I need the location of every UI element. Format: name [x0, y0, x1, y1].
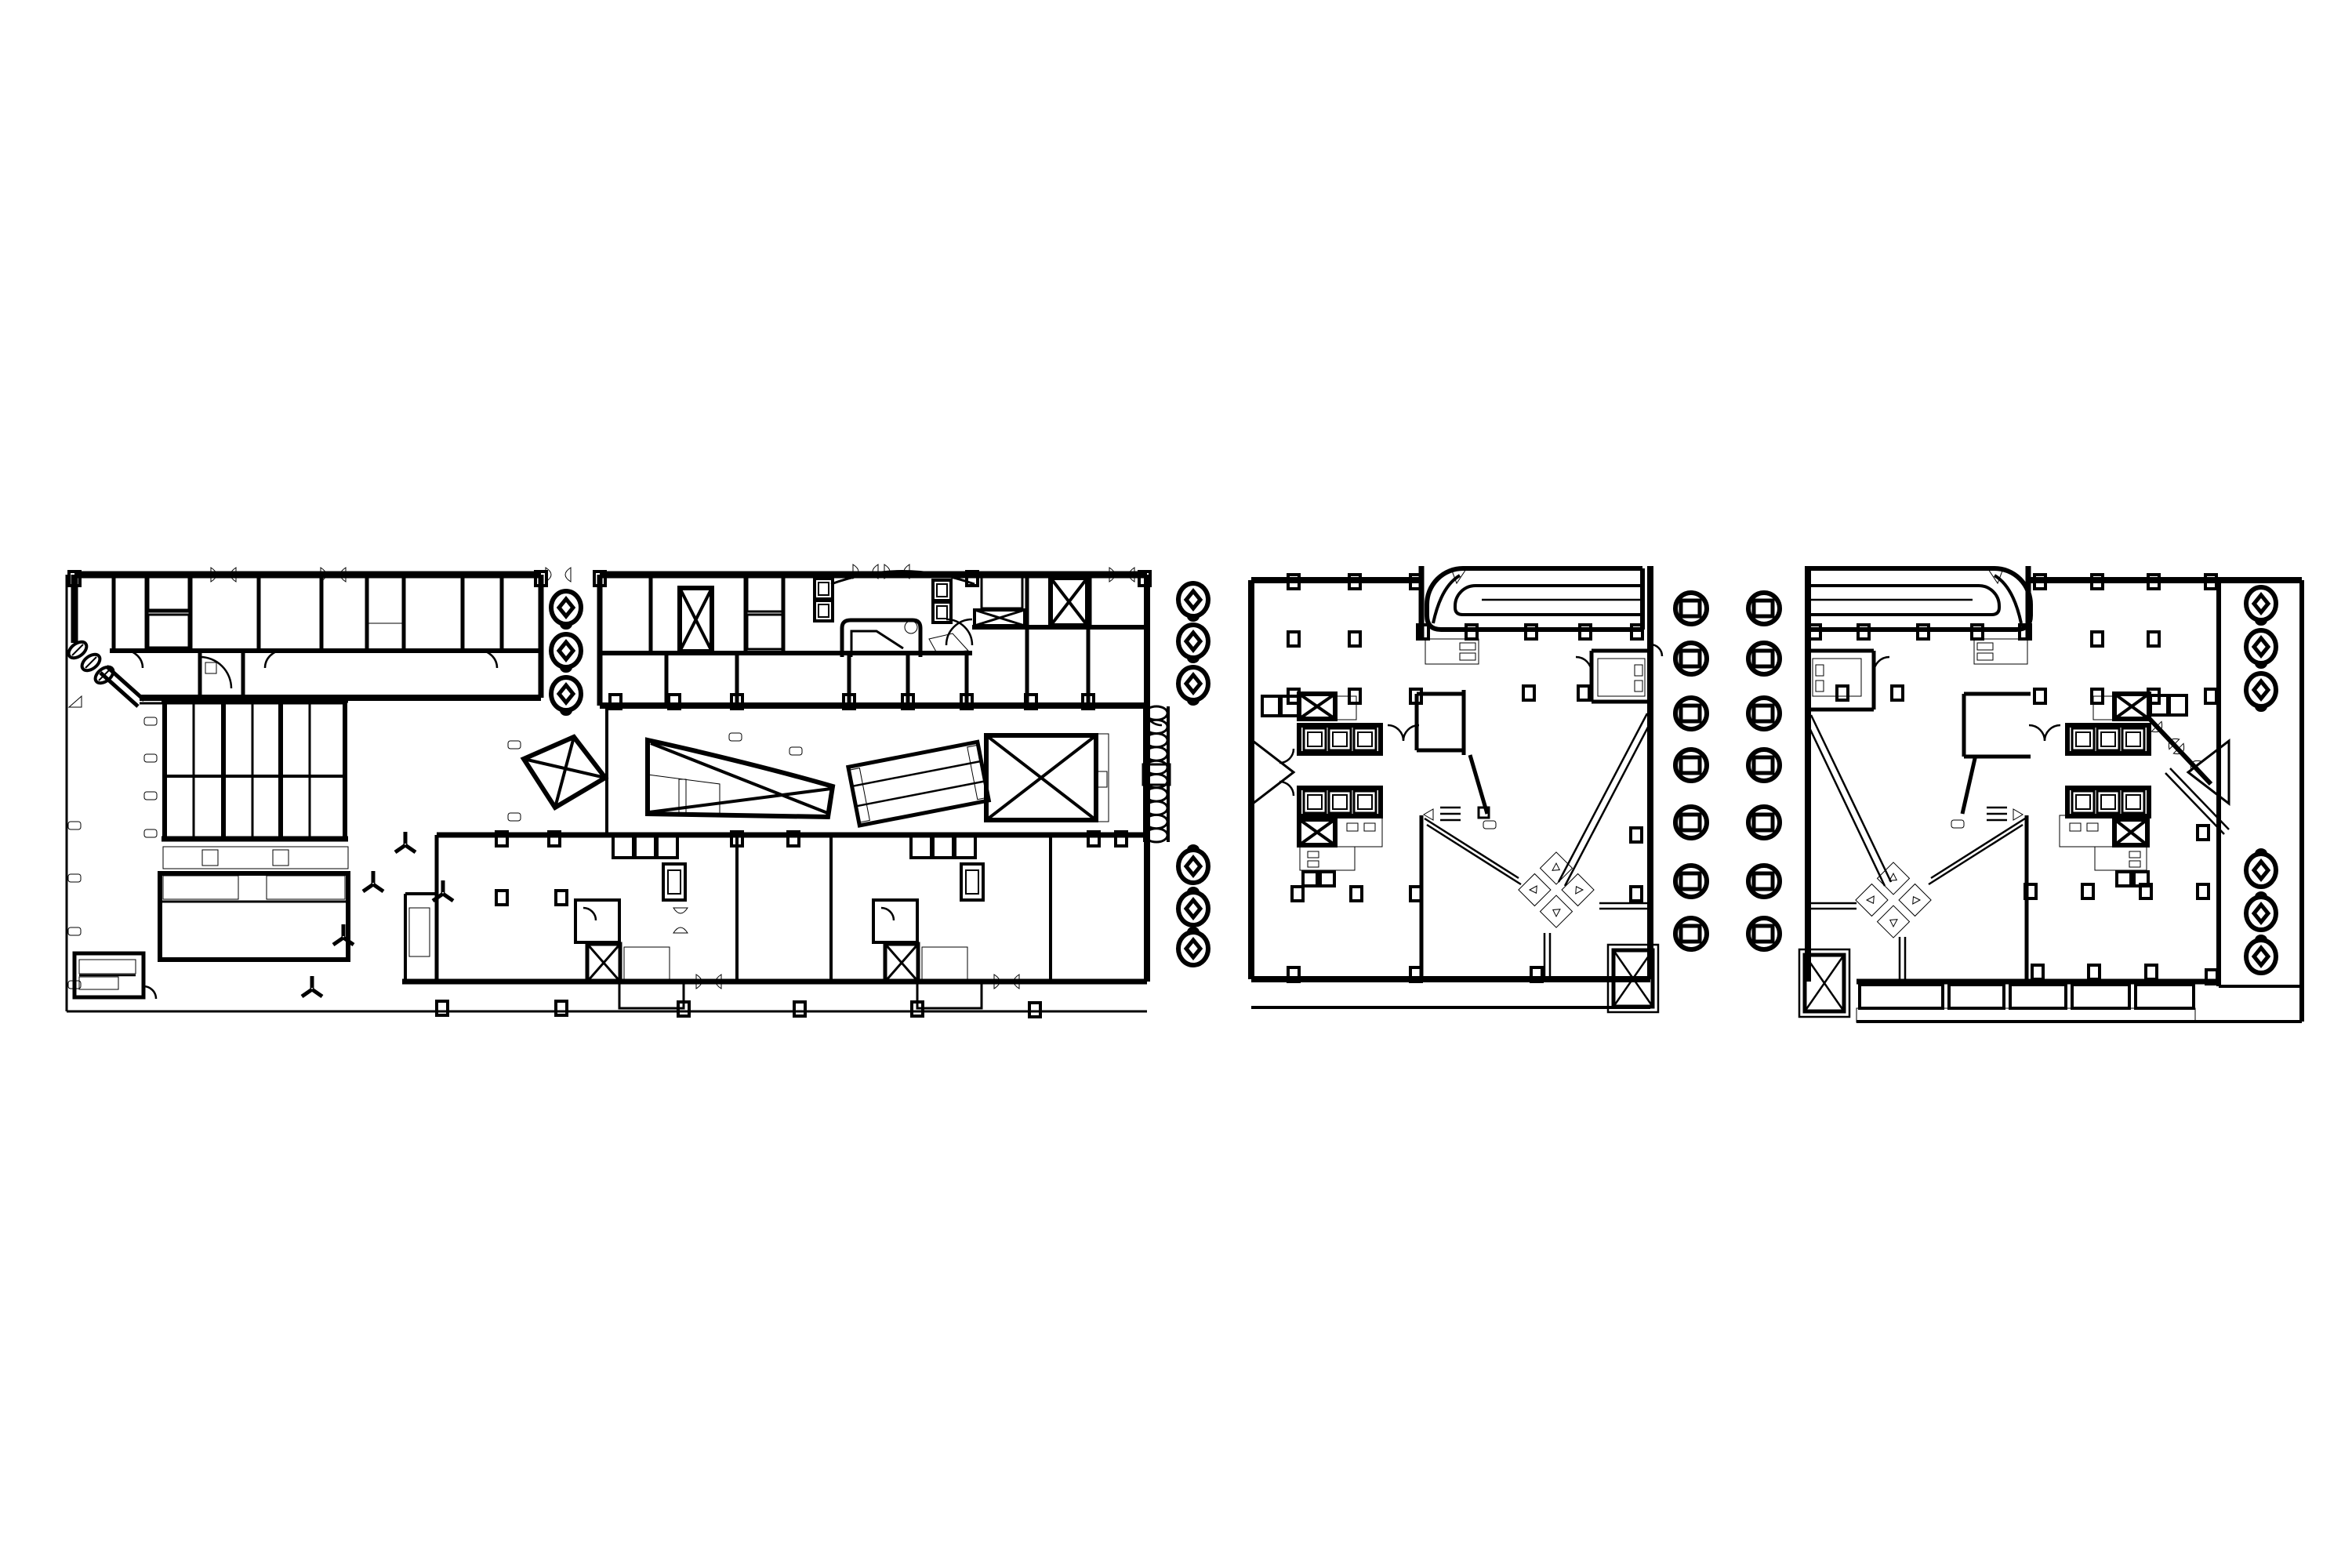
escalator-hatched	[848, 742, 989, 826]
column-dot-icon	[1483, 821, 1496, 829]
elevator-cells-right	[933, 580, 951, 622]
column-ring-diamond-icon	[2246, 630, 2276, 667]
column-dot-icon	[68, 927, 81, 935]
plan-a-left-wing	[66, 575, 541, 706]
drawing-canvas	[0, 0, 2352, 1568]
stair-x-shaft	[680, 588, 712, 652]
column-ring-diamond-icon	[2246, 673, 2276, 710]
column-ring-diamond-icon	[551, 677, 581, 714]
column-ring-diamond-icon	[2246, 936, 2276, 973]
plan-a	[66, 572, 1170, 1012]
column-ring-diamond-icon	[1178, 667, 1208, 704]
column-ring-square-icon	[1748, 750, 1780, 781]
column-dot-icon	[144, 754, 157, 762]
plan-a-plaza	[74, 700, 348, 999]
column-ring-square-icon	[1748, 643, 1780, 674]
column-dot-icon	[68, 874, 81, 882]
skylight-kite	[524, 737, 605, 808]
column-dot-icon	[144, 717, 157, 725]
wall-column-tick-icon	[556, 891, 567, 905]
column-ring-diamond-icon	[1178, 928, 1208, 965]
wall-column-tick-icon	[1288, 632, 1299, 646]
elevator-cells-left	[815, 579, 833, 621]
wall-column-tick-icon	[1837, 686, 1848, 700]
x-shaft-bottom	[1299, 819, 1335, 845]
elevator-bank-bottom-mirrored	[2067, 788, 2149, 816]
column-ring-square-icon	[1748, 698, 1780, 729]
corner-skylight-icon	[1799, 949, 1849, 1017]
escalator-parallelogram	[648, 740, 833, 817]
elevator-bank-bottom	[1299, 788, 1381, 816]
column-ring-square-icon	[1748, 593, 1780, 624]
column-ring-diamond-icon	[1178, 846, 1208, 883]
x-shaft-top-mirrored	[2114, 694, 2149, 719]
fan-stair	[1253, 741, 1294, 804]
wall-column-tick-icon	[1578, 686, 1589, 700]
column-ring-square-icon	[1675, 918, 1707, 949]
site-marker-triangle	[69, 696, 82, 707]
column-ring-square-icon	[1675, 807, 1707, 838]
column-ring-square-icon	[1675, 698, 1707, 729]
wall-column-tick-icon	[2032, 965, 2043, 979]
elevator-bank-top	[1299, 725, 1381, 753]
wall-column-tick-icon	[1349, 632, 1360, 646]
x-shaft-bottom-mirrored	[2114, 819, 2147, 845]
plant-icon	[363, 871, 383, 891]
column-dot-icon	[144, 792, 157, 800]
symbol-instances	[68, 564, 2276, 1017]
plan-a-bottom-rooms	[402, 835, 1147, 1008]
column-ring-square-icon	[1675, 593, 1707, 624]
column-ring-diamond-icon	[551, 634, 581, 671]
service-core-b	[873, 836, 983, 1008]
column-ring-square-icon	[1748, 807, 1780, 838]
column-dot-icon	[729, 733, 742, 741]
column-ring-diamond-icon	[2246, 587, 2276, 624]
stair-hatched-central-left	[746, 575, 783, 653]
plant-icon	[395, 832, 416, 852]
wall-column-tick-icon	[2082, 884, 2093, 898]
column-ring-square-icon	[1675, 750, 1707, 781]
diagonal-wall	[2148, 717, 2211, 784]
wall-column-tick-icon	[2198, 884, 2209, 898]
stair-hatched-wing	[148, 577, 189, 648]
wall-column-tick-icon	[1631, 887, 1642, 901]
plan-a-atrium	[524, 706, 1170, 842]
column-dot-icon	[144, 829, 157, 837]
plant-icon	[333, 924, 354, 945]
column-ring-diamond-icon	[2246, 850, 2276, 887]
wall-column-tick-icon	[2146, 965, 2157, 979]
door-bowtie-icon	[546, 568, 571, 582]
plant-icon	[302, 976, 322, 996]
column-dot-icon	[68, 822, 81, 829]
wall-column-tick-icon	[1292, 887, 1303, 901]
column-ring-diamond-icon	[1178, 888, 1208, 925]
wall-column-tick-icon	[1892, 686, 1903, 700]
column-dot-icon	[508, 813, 521, 821]
floor-plan-sheet	[0, 0, 2352, 1568]
skylight-x-box	[986, 734, 1109, 822]
wall-column-tick-icon	[794, 1002, 805, 1016]
wall-column-tick-icon	[2092, 632, 2103, 646]
plan-c-bottom-strip	[1857, 985, 2195, 1022]
x-shaft-top	[1299, 694, 1335, 719]
wall-column-tick-icon	[556, 1001, 567, 1015]
wall-column-tick-icon	[1523, 686, 1534, 700]
column-ring-diamond-icon	[2246, 893, 2276, 930]
wall-column-tick-icon	[437, 1001, 448, 1015]
wall-column-tick-icon	[2198, 826, 2209, 840]
stair-x-shaft-right	[1051, 578, 1087, 626]
column-ring-square-icon	[1748, 866, 1780, 897]
plan-c	[1806, 566, 2302, 1022]
trellis-grid	[160, 700, 348, 960]
wall-column-tick-icon	[1029, 1003, 1040, 1017]
kiosk	[74, 953, 156, 999]
door-bowtie-icon	[673, 908, 688, 933]
column-ring-diamond-icon	[1178, 625, 1208, 662]
wall-column-tick-icon	[2148, 632, 2159, 646]
entrance-lobby	[831, 572, 975, 658]
column-dot-icon	[1951, 820, 1964, 828]
quad-core-cluster-icon	[1856, 862, 1931, 938]
plan-b-core	[1253, 690, 1489, 979]
column-ring-square-icon	[1748, 918, 1780, 949]
wall-column-tick-icon	[496, 891, 507, 905]
wall-column-tick-icon	[2089, 965, 2100, 979]
quad-core-cluster-icon	[1519, 852, 1594, 927]
column-ring-square-icon	[1675, 643, 1707, 674]
column-ring-diamond-icon	[551, 591, 581, 628]
column-ring-square-icon	[1675, 866, 1707, 897]
black-room	[368, 578, 403, 623]
elevator-bank-top-mirrored	[2067, 725, 2149, 753]
wall-column-tick-icon	[1351, 887, 1362, 901]
service-core-a	[575, 836, 685, 1008]
column-ring-diamond-icon	[1178, 583, 1208, 620]
wall-column-tick-icon	[2205, 689, 2216, 703]
wall-column-tick-icon	[2034, 689, 2045, 703]
column-dot-icon	[508, 741, 521, 749]
wall-column-tick-icon	[1631, 828, 1642, 842]
plan-b-corridors	[1424, 713, 1652, 979]
column-dot-icon	[789, 747, 802, 755]
stair-hatched-central-right	[975, 577, 1025, 626]
plan-b	[1251, 566, 1662, 1007]
